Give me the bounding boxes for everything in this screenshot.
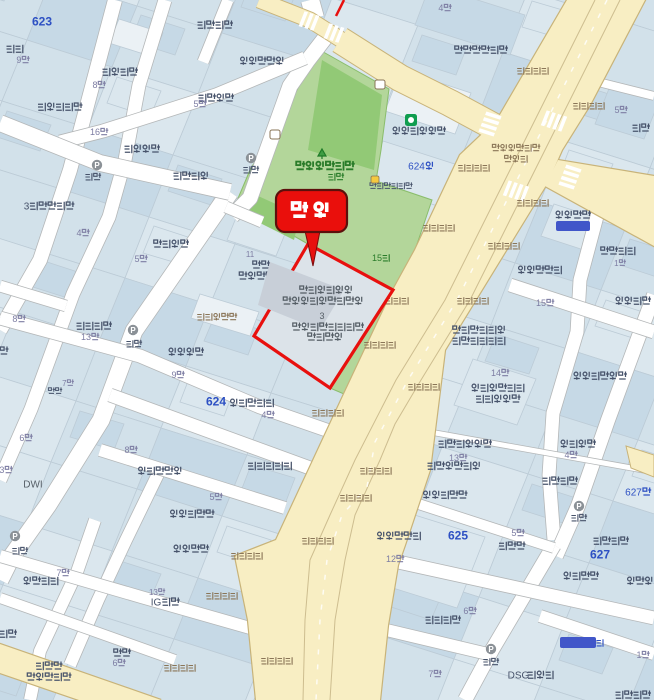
svg-text:4: 4: [76, 228, 81, 238]
svg-text:DSG: DSG: [508, 671, 530, 682]
svg-text:5: 5: [193, 99, 198, 109]
svg-text:6: 6: [19, 433, 24, 443]
svg-text:P: P: [94, 161, 100, 170]
svg-text:12: 12: [386, 554, 396, 564]
svg-text:3: 3: [0, 465, 4, 475]
svg-text:5: 5: [134, 254, 139, 264]
svg-text:P: P: [488, 645, 494, 654]
svg-text:P: P: [576, 502, 582, 511]
svg-text:1: 1: [636, 650, 641, 660]
svg-text:623: 623: [32, 14, 52, 28]
svg-text:6: 6: [112, 658, 117, 668]
svg-text:P: P: [248, 154, 254, 163]
svg-text:7: 7: [56, 568, 61, 578]
svg-text:9: 9: [16, 55, 21, 65]
svg-text:P: P: [12, 532, 18, 541]
svg-text:13: 13: [149, 588, 158, 597]
svg-text:4: 4: [438, 3, 443, 13]
svg-text:5: 5: [614, 105, 619, 115]
svg-text:7: 7: [428, 669, 433, 679]
svg-text:4: 4: [261, 410, 266, 420]
svg-text:9: 9: [171, 370, 176, 380]
svg-text:DWI: DWI: [23, 480, 42, 491]
svg-text:5: 5: [511, 528, 516, 538]
svg-text:8: 8: [12, 314, 17, 324]
svg-text:16: 16: [90, 127, 100, 137]
svg-text:P: P: [130, 326, 136, 335]
svg-text:627: 627: [590, 547, 610, 561]
svg-text:14: 14: [491, 368, 501, 378]
svg-text:3: 3: [319, 311, 324, 321]
svg-text:624: 624: [408, 162, 425, 173]
svg-text:15: 15: [536, 298, 546, 308]
svg-text:11: 11: [246, 250, 255, 259]
svg-text:13: 13: [81, 332, 91, 342]
svg-text:7: 7: [62, 379, 67, 388]
svg-text:8: 8: [92, 80, 97, 90]
svg-text:625: 625: [448, 528, 468, 542]
svg-text:624: 624: [206, 394, 226, 408]
svg-text:15: 15: [372, 253, 382, 263]
svg-text:IG: IG: [151, 598, 162, 609]
svg-text:627: 627: [625, 488, 642, 499]
svg-text:4: 4: [564, 450, 569, 460]
svg-text:8: 8: [124, 445, 129, 455]
svg-text:6: 6: [463, 606, 468, 616]
svg-text:1: 1: [614, 259, 619, 268]
svg-text:5: 5: [209, 492, 214, 502]
svg-text:3: 3: [24, 202, 30, 213]
